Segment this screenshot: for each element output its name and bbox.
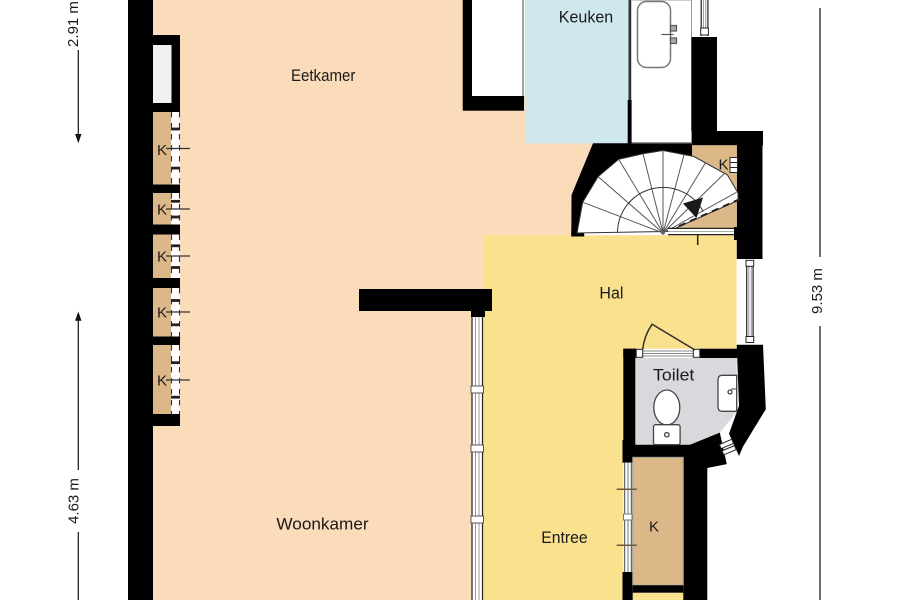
svg-text:Entree: Entree [541, 528, 587, 547]
svg-text:4.63 m: 4.63 m [65, 478, 82, 524]
svg-text:Keuken: Keuken [559, 8, 613, 27]
svg-text:9.53 m: 9.53 m [809, 268, 826, 314]
svg-text:Toilet: Toilet [653, 365, 695, 384]
svg-text:K: K [718, 157, 728, 174]
svg-text:Eetkamer: Eetkamer [291, 66, 356, 85]
svg-text:Hal: Hal [599, 284, 623, 303]
svg-text:K: K [157, 373, 167, 390]
svg-text:K: K [157, 305, 167, 322]
svg-text:2.91 m: 2.91 m [65, 1, 82, 47]
svg-text:Woonkamer: Woonkamer [276, 515, 369, 534]
svg-text:K: K [649, 519, 659, 536]
svg-text:K: K [157, 202, 167, 219]
svg-text:K: K [157, 142, 167, 159]
svg-text:K: K [157, 249, 167, 266]
